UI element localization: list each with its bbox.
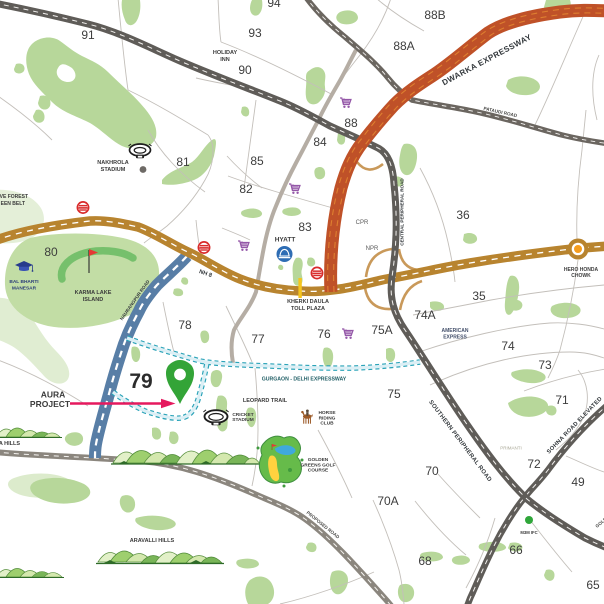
svg-text:M3M IFC: M3M IFC xyxy=(520,530,537,535)
svg-text:...AGA HILLS: ...AGA HILLS xyxy=(0,441,20,447)
svg-text:83: 83 xyxy=(298,220,312,234)
svg-text:70: 70 xyxy=(425,464,439,478)
svg-text:GURGAON - DELHI EXPRESSWAY: GURGAON - DELHI EXPRESSWAY xyxy=(262,377,347,383)
svg-text:NPR: NPR xyxy=(366,246,379,252)
svg-text:75A: 75A xyxy=(371,323,392,337)
svg-text:88B: 88B xyxy=(424,8,445,22)
svg-text:VE FORESTEEN BELT: VE FORESTEEN BELT xyxy=(0,194,28,207)
svg-text:CPR: CPR xyxy=(356,220,369,226)
svg-text:82: 82 xyxy=(239,182,253,196)
svg-text:75: 75 xyxy=(387,387,401,401)
svg-text:74: 74 xyxy=(501,339,515,353)
svg-text:LEOPARD TRAIL: LEOPARD TRAIL xyxy=(243,398,288,404)
svg-text:80: 80 xyxy=(44,245,58,259)
svg-text:91: 91 xyxy=(81,28,95,42)
svg-text:90: 90 xyxy=(238,63,252,77)
svg-text:ARAVALLI HILLS: ARAVALLI HILLS xyxy=(130,538,175,544)
svg-text:74A: 74A xyxy=(414,308,435,322)
svg-text:HORSERIDINGCLUB: HORSERIDINGCLUB xyxy=(318,410,336,427)
svg-text:68: 68 xyxy=(418,554,432,568)
svg-text:78: 78 xyxy=(178,318,192,332)
svg-text:65: 65 xyxy=(586,578,600,592)
svg-text:85: 85 xyxy=(250,154,264,168)
svg-text:88A: 88A xyxy=(393,39,414,53)
svg-text:49: 49 xyxy=(571,475,585,489)
svg-text:88: 88 xyxy=(344,116,358,130)
svg-text:NAKHROLASTADIUM: NAKHROLASTADIUM xyxy=(97,160,128,173)
svg-text:HYATT: HYATT xyxy=(275,237,296,244)
svg-text:66: 66 xyxy=(509,543,523,557)
svg-text:77: 77 xyxy=(251,332,265,346)
svg-text:CRICKETSTADIUM: CRICKETSTADIUM xyxy=(232,412,254,423)
svg-text:AMERICANEXPRESS: AMERICANEXPRESS xyxy=(442,328,469,341)
svg-text:CENTRAL PERIPHERAL ROAD: CENTRAL PERIPHERAL ROAD xyxy=(400,178,405,246)
svg-text:94: 94 xyxy=(267,0,281,10)
svg-text:35: 35 xyxy=(472,289,486,303)
svg-text:73: 73 xyxy=(538,358,552,372)
svg-text:72: 72 xyxy=(527,457,541,471)
svg-text:71: 71 xyxy=(555,393,569,407)
svg-text:76: 76 xyxy=(317,327,331,341)
svg-text:84: 84 xyxy=(313,135,327,149)
svg-text:70A: 70A xyxy=(377,494,398,508)
svg-text:93: 93 xyxy=(248,26,262,40)
svg-text:81: 81 xyxy=(176,155,190,169)
svg-text:79: 79 xyxy=(129,370,152,393)
svg-text:36: 36 xyxy=(456,208,470,222)
svg-text:PRIMANTI: PRIMANTI xyxy=(500,446,522,451)
svg-text:KHERKI DAULATOLL PLAZA: KHERKI DAULATOLL PLAZA xyxy=(287,299,329,312)
